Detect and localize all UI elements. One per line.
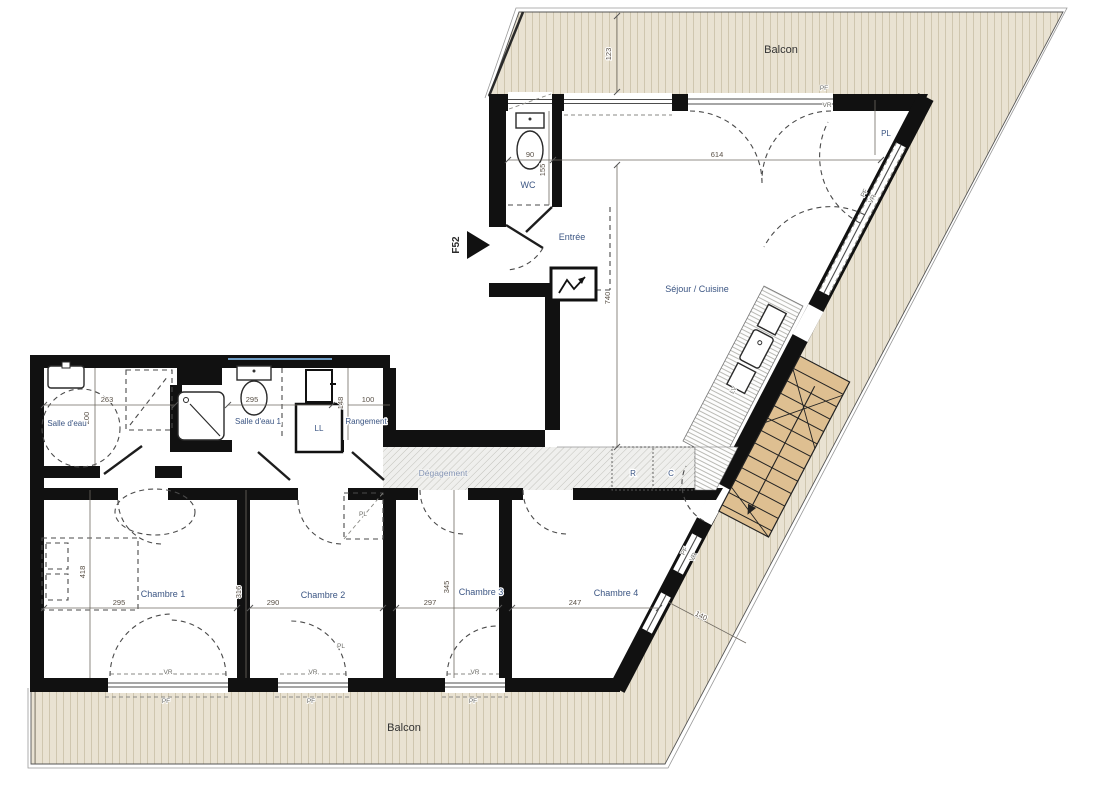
wall-corridor-south-4: [468, 488, 523, 500]
dim-sejour-height: 740: [603, 292, 612, 305]
label-entree: Entrée: [559, 232, 586, 242]
dim-ch4-width: 247: [569, 598, 582, 607]
label-pl-ch2-top: PL: [359, 511, 367, 518]
ll-cabinet: [306, 370, 332, 402]
chambre3-window: [445, 676, 505, 693]
dim-rangement-width: 100: [362, 395, 375, 404]
label-pl-ch2-bottom: PL: [337, 643, 345, 650]
label-kitchen-r: R: [630, 469, 636, 478]
label-vr-top: VR: [822, 102, 831, 109]
dim-ch1-height: 418: [78, 566, 87, 579]
label-chambre-3: Chambre 3: [459, 587, 504, 597]
entrance-marker: F52: [451, 231, 490, 259]
wall-sejour-west: [545, 297, 560, 430]
label-pf-ch2: PF: [307, 698, 315, 705]
wall-shower-north: [177, 368, 222, 385]
wall-corridor-south-1: [44, 488, 118, 500]
label-rangement: Rangement: [345, 417, 387, 426]
floor-plan-page: F52 123 90 155 614 740 263 200 295 148 1…: [0, 0, 1095, 800]
wall-ch3-ch4: [499, 488, 512, 678]
sde1-toilet-tank: [237, 366, 271, 380]
wall-sde-south-1: [44, 466, 100, 478]
wall-bath-south-1: [170, 440, 232, 452]
dim-ch1-width: 295: [113, 598, 126, 607]
wall-leftwing-north: [30, 355, 390, 368]
wall-left-upper: [489, 94, 506, 227]
wall-west: [30, 355, 44, 692]
label-degagement: Dégagement: [419, 468, 468, 478]
label-chambre-2: Chambre 2: [301, 590, 346, 600]
sde-washbasin: [48, 366, 84, 388]
wall-ch2-ch3: [383, 488, 396, 678]
label-salle-deau: Salle d'eau: [47, 419, 86, 428]
label-pf-top: PF: [820, 85, 828, 92]
label-salle-deau-1: Salle d'eau 1: [235, 417, 282, 426]
wall-corridor-north: [383, 430, 545, 447]
sejour-window-band: [564, 93, 672, 111]
wall-sde-south-2: [155, 466, 182, 478]
label-balcon-top: Balcon: [764, 44, 798, 56]
dim-ch2-width: 290: [267, 598, 280, 607]
wall-entree-south: [489, 283, 560, 297]
unit-id-label: F52: [451, 236, 462, 254]
label-vr-ch3: VR: [470, 669, 479, 676]
chambre1-window: [108, 676, 228, 693]
label-sejour-cuisine: Séjour / Cuisine: [665, 284, 729, 294]
floor-plan-canvas: F52 123 90 155 614 740 263 200 295 148 1…: [0, 0, 1095, 800]
dim-sejour-width: 614: [711, 150, 724, 159]
label-kitchen-c: C: [668, 469, 674, 478]
dim-wc-width: 90: [526, 150, 534, 159]
dim-ch3-height: 345: [442, 581, 451, 594]
label-chambre-4: Chambre 4: [594, 588, 639, 598]
dim-balcony-depth: 123: [604, 48, 613, 61]
label-pf-ch3: PF: [469, 698, 477, 705]
dim-wc-height: 155: [538, 164, 547, 177]
label-ll: LL: [315, 424, 324, 433]
label-balcon-bottom: Balcon: [387, 722, 421, 734]
sejour-pf-door: [688, 93, 833, 111]
electrical-panel: [551, 268, 596, 300]
label-pl-sejour: PL: [881, 129, 891, 138]
label-pf-ch1: PF: [162, 698, 170, 705]
entrance-arrow-icon: [467, 231, 490, 259]
chambre2-window: [278, 676, 348, 693]
dim-ch3-width: 297: [424, 598, 437, 607]
wall-wc-east: [552, 110, 562, 207]
dim-sde1-width: 295: [246, 395, 259, 404]
label-wc: WC: [521, 180, 536, 190]
dim-rangement-height: 148: [336, 397, 345, 410]
label-vr-ch2: VR: [308, 669, 317, 676]
label-vr-ch1: VR: [163, 669, 172, 676]
dim-ch2-height: 316: [234, 586, 243, 599]
dim-sde-width: 263: [101, 395, 114, 404]
label-chambre-1: Chambre 1: [141, 589, 186, 599]
